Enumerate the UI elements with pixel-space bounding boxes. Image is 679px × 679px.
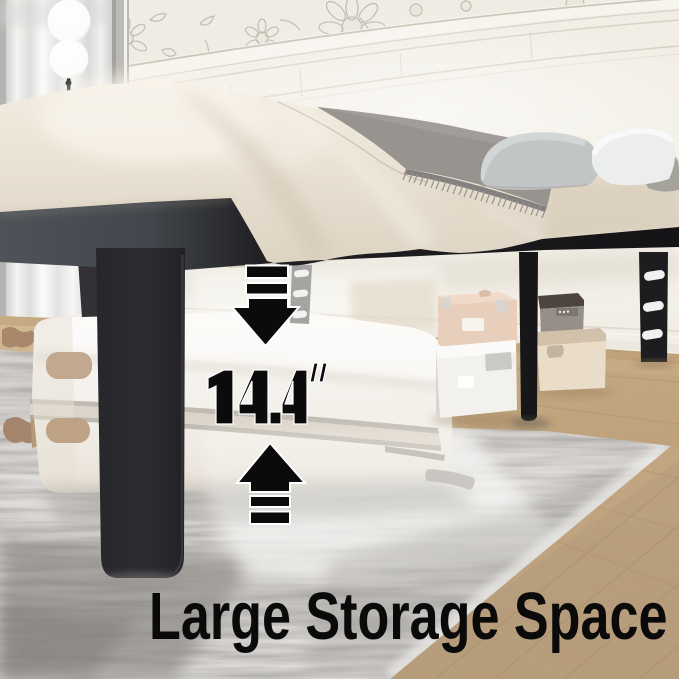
svg-text:Large Storage Space: Large Storage Space (149, 579, 667, 654)
